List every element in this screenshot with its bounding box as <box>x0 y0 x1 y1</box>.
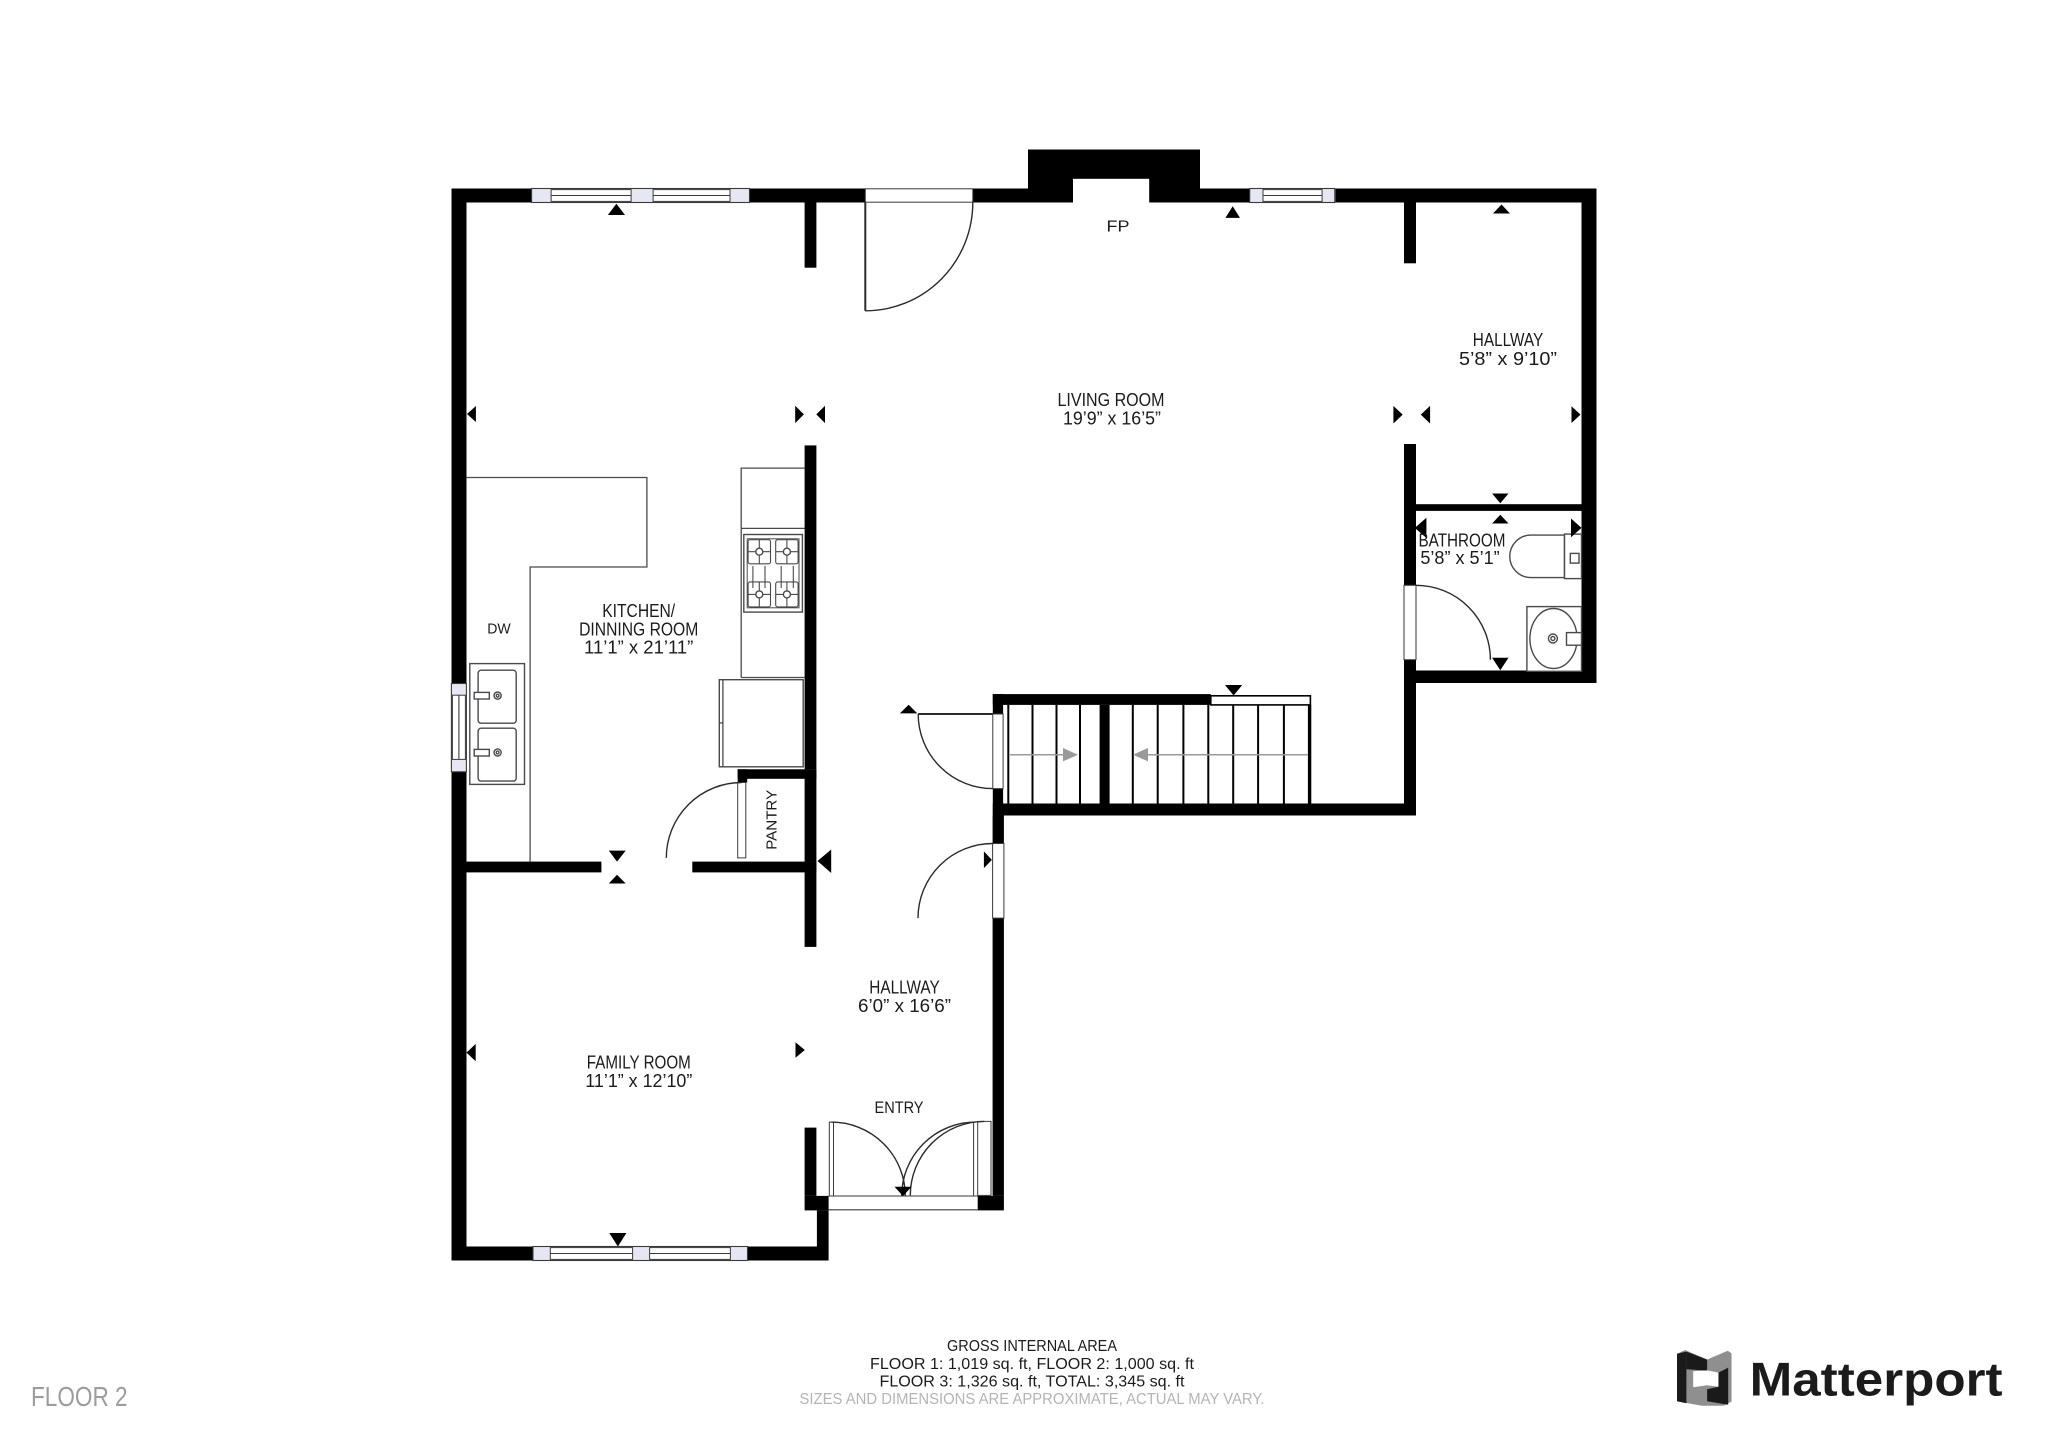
svg-text:11’1” x 12’10”: 11’1” x 12’10” <box>585 1070 692 1091</box>
svg-text:Matterport: Matterport <box>1750 1353 2003 1406</box>
svg-text:SIZES AND DIMENSIONS ARE APPRO: SIZES AND DIMENSIONS ARE APPROXIMATE, AC… <box>800 1391 1265 1408</box>
svg-text:PANTRY: PANTRY <box>763 790 780 850</box>
svg-text:11’1” x 21’11”: 11’1” x 21’11” <box>584 637 693 658</box>
svg-text:5’8” x 9’10”: 5’8” x 9’10” <box>1459 348 1557 369</box>
svg-text:FLOOR 3: 1,326 sq. ft, TOTAL:: FLOOR 3: 1,326 sq. ft, TOTAL: 3,345 sq. … <box>880 1373 1186 1390</box>
svg-text:FLOOR 2: FLOOR 2 <box>31 1381 128 1412</box>
svg-text:ENTRY: ENTRY <box>875 1098 924 1117</box>
svg-text:6’0” x 16’6”: 6’0” x 16’6” <box>858 995 951 1016</box>
svg-text:HALLWAY: HALLWAY <box>1473 329 1543 350</box>
svg-text:DW: DW <box>487 621 511 638</box>
svg-text:FLOOR 1: 1,019 sq. ft, FLOOR 2: FLOOR 1: 1,019 sq. ft, FLOOR 2: 1,000 sq… <box>870 1356 1195 1373</box>
svg-text:19’9” x 16’5”: 19’9” x 16’5” <box>1063 407 1161 428</box>
svg-text:GROSS INTERNAL AREA: GROSS INTERNAL AREA <box>947 1338 1117 1355</box>
svg-text:5’8” x 5’1”: 5’8” x 5’1” <box>1420 547 1499 568</box>
svg-text:FP: FP <box>1107 219 1130 236</box>
